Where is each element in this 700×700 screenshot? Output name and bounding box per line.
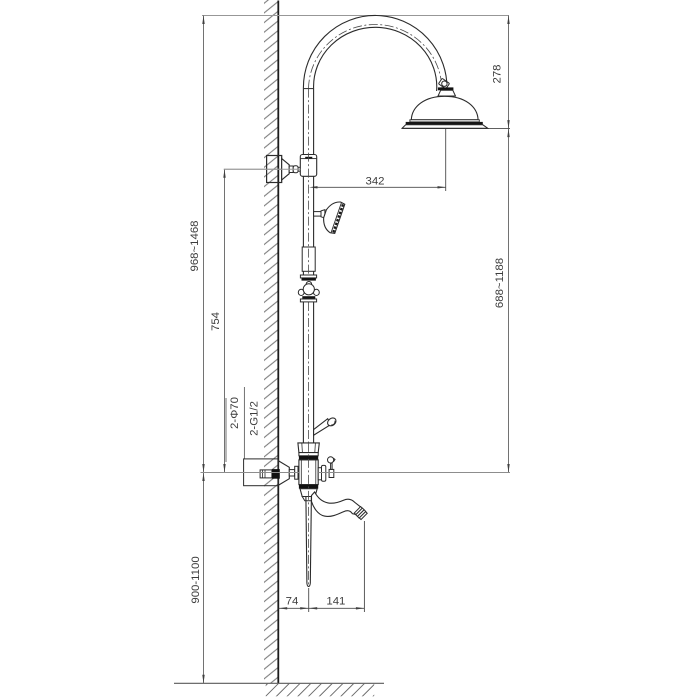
svg-text:74: 74 <box>286 596 299 608</box>
svg-text:2-G1/2: 2-G1/2 <box>249 401 261 436</box>
svg-text:900-1100: 900-1100 <box>190 556 202 603</box>
svg-text:754: 754 <box>210 312 222 331</box>
svg-text:2-Φ70: 2-Φ70 <box>229 397 241 429</box>
svg-text:968~1468: 968~1468 <box>189 221 201 272</box>
svg-text:278: 278 <box>492 64 504 83</box>
svg-text:688~1188: 688~1188 <box>494 258 506 308</box>
svg-text:141: 141 <box>326 596 345 608</box>
svg-text:342: 342 <box>365 176 384 188</box>
